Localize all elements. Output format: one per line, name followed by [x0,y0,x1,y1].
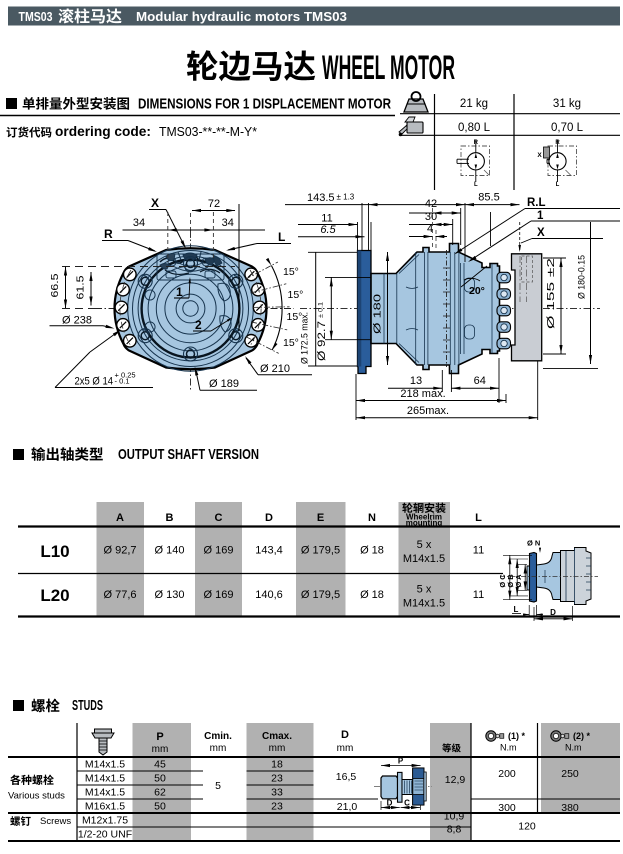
svg-text:N: N [368,512,376,524]
svg-text:(1) *: (1) * [508,731,526,741]
svg-text:11: 11 [321,213,332,225]
svg-text:± 0.1: ± 0.1 [318,302,325,318]
svg-text:Ø 155 ±2: Ø 155 ±2 [545,258,557,329]
svg-text:- 0.1: - 0.1 [115,377,130,386]
svg-text:L: L [474,182,478,188]
svg-text:265max.: 265max. [407,405,449,417]
svg-text:DIMENSIONS FOR 1 DISPLACEMENT: DIMENSIONS FOR 1 DISPLACEMENT MOTOR [138,96,391,113]
svg-text:Ø 180-0.15: Ø 180-0.15 [577,255,588,299]
svg-text:M16x1.5: M16x1.5 [85,801,125,813]
svg-text:mounting: mounting [406,519,443,528]
svg-text:50: 50 [154,773,166,785]
svg-text:6.5: 6.5 [320,224,336,236]
svg-text:OUTPUT SHAFT VERSION: OUTPUT SHAFT VERSION [118,446,259,463]
svg-text:M14x1.5: M14x1.5 [403,598,445,610]
svg-text:STUDS: STUDS [72,697,103,714]
svg-text:12,9: 12,9 [445,774,466,786]
svg-text:X: X [151,196,159,210]
svg-text:N.m: N.m [500,743,517,753]
svg-text:21 kg: 21 kg [460,98,488,110]
svg-text:N.m: N.m [565,743,582,753]
svg-text:L: L [556,182,560,188]
svg-text:15°: 15° [283,337,299,349]
svg-text:L20: L20 [40,586,69,605]
svg-text:Ø 180: Ø 180 [373,293,384,334]
svg-text:143.5: 143.5 [307,192,335,204]
svg-text:2x5 Ø 14: 2x5 Ø 14 [75,376,114,388]
svg-text:M14x1.5: M14x1.5 [85,759,125,771]
svg-text:R: R [474,140,479,146]
svg-text:Ø A: Ø A [514,574,523,588]
svg-text:50: 50 [154,801,166,813]
svg-text:L: L [514,605,519,614]
svg-text:Ø 179,5: Ø 179,5 [301,545,340,557]
svg-text:Ø 169: Ø 169 [204,589,234,601]
svg-text:72: 72 [208,198,220,210]
svg-text:Ø 77,6: Ø 77,6 [103,589,136,601]
svg-text:R.L: R.L [527,197,546,209]
svg-text:P: P [398,757,404,766]
svg-text:23: 23 [271,801,283,813]
svg-text:31 kg: 31 kg [553,98,581,110]
svg-text:8,8: 8,8 [447,824,462,836]
svg-text:34: 34 [222,217,234,229]
svg-text:120: 120 [518,821,536,833]
svg-text:Ø 130: Ø 130 [155,589,185,601]
svg-text:380: 380 [561,802,579,814]
svg-text:M12x1.75: M12x1.75 [82,815,128,827]
svg-text:18: 18 [271,759,283,771]
svg-text:11: 11 [473,545,484,557]
svg-text:62: 62 [154,787,166,799]
svg-text:45: 45 [154,759,166,771]
svg-text:85.5: 85.5 [478,192,499,204]
svg-text:Ø 18: Ø 18 [360,545,384,557]
svg-text:143,4: 143,4 [255,545,283,557]
svg-text:1: 1 [176,285,183,299]
svg-text:30: 30 [425,211,437,223]
svg-text:Various studs: Various studs [8,791,65,802]
svg-text:mm: mm [269,743,286,754]
svg-text:Ø 92,7: Ø 92,7 [103,545,136,557]
svg-text:23: 23 [271,773,283,785]
svg-text:Ø 179,5: Ø 179,5 [301,589,340,601]
svg-text:Cmax.: Cmax. [262,731,292,742]
svg-text:L10: L10 [40,542,69,561]
svg-text:66.5: 66.5 [49,273,61,297]
svg-text:15°: 15° [283,266,299,278]
svg-text:5 x: 5 x [417,539,432,551]
svg-text:5 x: 5 x [417,584,432,596]
svg-text:140,6: 140,6 [255,589,283,601]
svg-text:Ø 18: Ø 18 [360,589,384,601]
svg-text:300: 300 [498,802,516,814]
svg-text:250: 250 [561,768,579,780]
svg-text:mm: mm [337,743,354,754]
svg-text:(2) *: (2) * [573,731,591,741]
svg-text:61.5: 61.5 [75,275,87,299]
svg-text:M14x1.5: M14x1.5 [403,553,445,565]
svg-text:D: D [341,729,349,741]
svg-text:1/2-20 UNF: 1/2-20 UNF [78,829,132,841]
svg-text:mm: mm [210,743,227,754]
svg-text:42: 42 [425,198,437,210]
svg-text:10,9: 10,9 [444,811,465,823]
svg-text:Ø 172.5 max.: Ø 172.5 max. [300,312,311,364]
svg-text:15°: 15° [288,289,304,301]
svg-text:± 1.3: ± 1.3 [337,193,355,202]
svg-text:11: 11 [473,589,484,601]
svg-text:X: X [537,227,545,239]
svg-text:WHEEL MOTOR: WHEEL MOTOR [322,49,455,87]
svg-text:0,70 L: 0,70 L [551,122,584,134]
svg-text:Ø 140: Ø 140 [155,545,185,557]
svg-text:C: C [215,512,223,524]
svg-text:13: 13 [410,375,422,387]
svg-text:A: A [116,512,124,524]
svg-text:R: R [555,140,560,146]
svg-text:Ø 92.7: Ø 92.7 [316,321,328,361]
svg-text:20°: 20° [469,285,485,297]
svg-text:Ø 238: Ø 238 [62,315,92,327]
svg-text:Modular hydraulic motors TMS03: Modular hydraulic motors TMS03 [136,9,347,24]
svg-text:34: 34 [133,217,145,229]
svg-text:TMS03: TMS03 [19,9,53,24]
svg-text:218 max.: 218 max. [400,388,445,400]
svg-text:33: 33 [271,787,283,799]
svg-text:16,5: 16,5 [336,771,357,783]
svg-text:E: E [317,512,324,524]
svg-text:L: L [475,512,482,524]
svg-text:X: X [537,152,542,159]
svg-text:200: 200 [498,768,516,780]
svg-text:M14x1.5: M14x1.5 [85,787,125,799]
svg-text:Cmin.: Cmin. [204,731,232,742]
svg-text:Ø 210: Ø 210 [260,363,290,375]
svg-text:64: 64 [474,375,486,387]
svg-text:P: P [156,731,163,743]
svg-text:R: R [104,227,113,241]
svg-text:TMS03-**-**-M-Y*: TMS03-**-**-M-Y* [159,125,257,139]
svg-text:0,80 L: 0,80 L [458,122,491,134]
svg-text:mm: mm [152,744,169,755]
svg-text:2: 2 [195,318,202,332]
svg-text:L: L [278,230,285,244]
svg-text:1: 1 [537,210,544,222]
svg-text:M14x1.5: M14x1.5 [85,773,125,785]
svg-text:5: 5 [215,780,221,792]
svg-text:Screws: Screws [40,816,71,827]
svg-text:D: D [265,512,273,524]
svg-text:ordering code:: ordering code: [55,123,151,139]
svg-text:Ø 169: Ø 169 [204,545,234,557]
svg-text:Ø 189: Ø 189 [209,378,239,390]
svg-text:B: B [166,512,174,524]
svg-text:D: D [550,608,556,617]
svg-text:Ø N: Ø N [527,539,540,548]
svg-text:21,0: 21,0 [337,801,358,813]
